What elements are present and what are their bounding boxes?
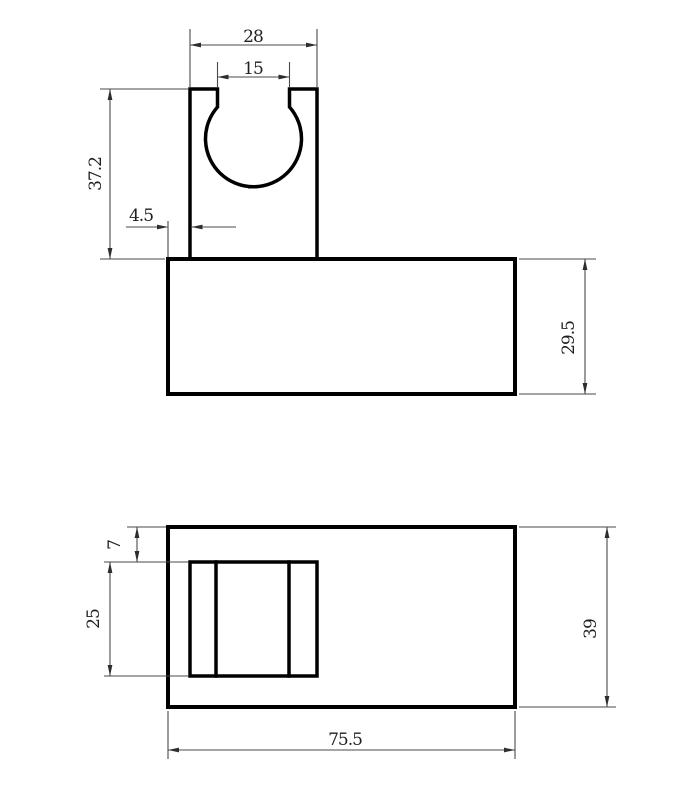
dim-75-5-arrow-right: [504, 748, 515, 753]
front-view: 28 15 37.2 4.5: [86, 27, 596, 394]
dim-7-arrow-top: [135, 527, 140, 538]
dim-39-arrow-bottom: [605, 696, 610, 707]
dim-25-arrow-top: [108, 562, 113, 573]
dim-7-label: 7: [105, 540, 125, 550]
dim-4-5-label: 4.5: [129, 206, 153, 226]
dim-15-arrow-left: [218, 75, 229, 80]
dim-7-arrow-bottom: [135, 551, 140, 562]
bottom-outer-rect: [168, 527, 515, 707]
dim-37-2-arrow-top: [108, 89, 113, 100]
dim-75-5: 75.5: [168, 711, 515, 759]
dim-39-label: 39: [581, 619, 601, 639]
dim-37-2-arrow-bottom: [108, 248, 113, 259]
dim-15: 15: [218, 59, 290, 87]
bottom-pocket-rect: [190, 562, 317, 676]
dim-29-5-arrow-top: [583, 259, 588, 270]
dim-37-2: 37.2: [86, 89, 188, 259]
dim-15-label: 15: [243, 59, 263, 79]
dim-4-5: 4.5: [126, 206, 236, 257]
dim-28-arrow-left: [190, 43, 201, 48]
dim-4-5-arrow-left: [157, 225, 168, 230]
dim-28-arrow-right: [306, 43, 317, 48]
dim-75-5-label: 75.5: [328, 730, 362, 750]
dim-4-5-arrow-right: [192, 225, 203, 230]
dim-25: 25: [84, 562, 188, 676]
dim-28-label: 28: [243, 27, 263, 47]
front-upright-outline: [190, 89, 317, 259]
dim-15-arrow-right: [279, 75, 290, 80]
dim-39-arrow-top: [605, 527, 610, 538]
technical-drawing-canvas: 28 15 37.2 4.5: [0, 0, 693, 800]
dim-29-5: 29.5: [519, 259, 596, 394]
front-base-rect: [168, 259, 515, 394]
dim-75-5-arrow-left: [168, 748, 179, 753]
dim-25-arrow-bottom: [108, 665, 113, 676]
dim-37-2-label: 37.2: [86, 157, 106, 191]
bottom-view: 7 25 39 75.5: [84, 527, 616, 759]
dim-7: 7: [104, 527, 188, 562]
dim-39: 39: [519, 527, 616, 707]
dim-29-5-label: 29.5: [559, 321, 579, 355]
dim-29-5-arrow-bottom: [583, 383, 588, 394]
dim-25-label: 25: [84, 609, 104, 629]
